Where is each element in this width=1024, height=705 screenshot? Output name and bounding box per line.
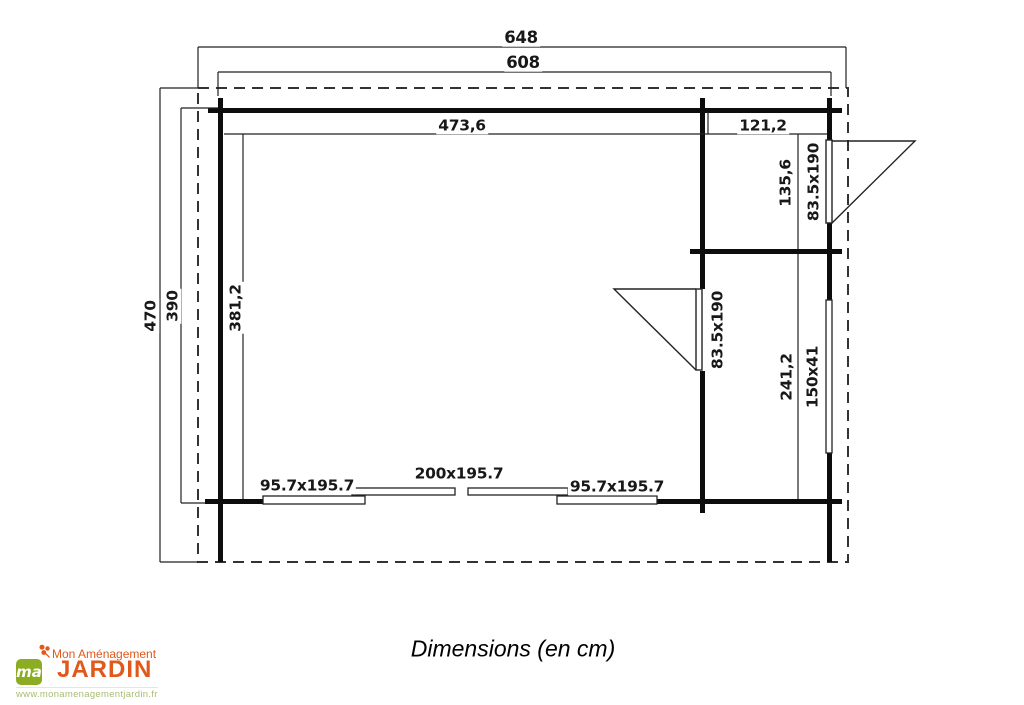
label-roof-depth: 470 [143,298,159,333]
back-wall [208,108,842,113]
label-main-room-width: 473,6 [436,118,488,134]
label-main-room-depth: 381,2 [228,282,244,334]
logo-brand: JARDIN [57,656,152,684]
caption: Dimensions (en cm) [411,636,616,663]
interior-door-swing [614,289,696,370]
label-exterior-depth: 390 [165,288,181,323]
right-wall-bottom-segment [827,453,832,562]
dim-line-exterior-width [218,72,831,96]
sliding-door-left-panel [352,488,455,495]
interior-wall-top-segment [700,98,705,289]
floor-plan [0,0,1024,705]
annex-door-leaf [826,140,832,223]
label-interior-door-size: 83.5x190 [710,289,726,371]
front-left-window-panel [263,496,365,504]
brand-logo: Mon Aménagement JARDIN ma www.monamenage… [15,641,165,701]
label-front-sliding-door: 200x195.7 [413,466,506,482]
front-wall-left-segment [205,499,263,504]
interior-door [614,289,702,370]
interior-partition-wall [690,249,842,254]
page: 648 608 473,6 121,2 470 390 381,2 135,6 … [0,0,1024,705]
logo-monogram: ma [16,659,42,685]
label-front-left-window: 95.7x195.7 [258,478,356,494]
label-exterior-width: 608 [504,55,542,72]
label-front-right-window: 95.7x195.7 [568,479,666,495]
logo-monogram-text: ma [16,663,42,681]
left-wall [218,98,223,562]
side-window [826,300,832,453]
dim-line-exterior-depth [181,108,218,503]
interior-wall-bottom-segment [700,371,705,513]
interior-door-leaf [696,289,702,370]
clover-icon [37,644,52,658]
front-right-window-panel [557,496,657,504]
label-side-window-size: 150x41 [805,344,821,410]
annex-door [826,140,915,223]
label-annex-width: 121,2 [737,118,789,134]
label-annex-door-size: 83.5x190 [806,141,822,223]
label-roof-width: 648 [502,30,540,47]
sliding-door-right-panel [468,488,568,495]
annex-door-swing [832,141,915,223]
right-wall-mid-segment [827,223,832,300]
logo-url: www.monamenagementjardin.fr [16,687,158,700]
label-annex-bottom-depth: 241,2 [779,351,795,403]
dim-line-roof-depth [160,88,198,562]
label-annex-top-depth: 135,6 [778,157,794,209]
right-wall-top-segment [827,98,832,140]
front-wall-right-segment [657,499,842,504]
